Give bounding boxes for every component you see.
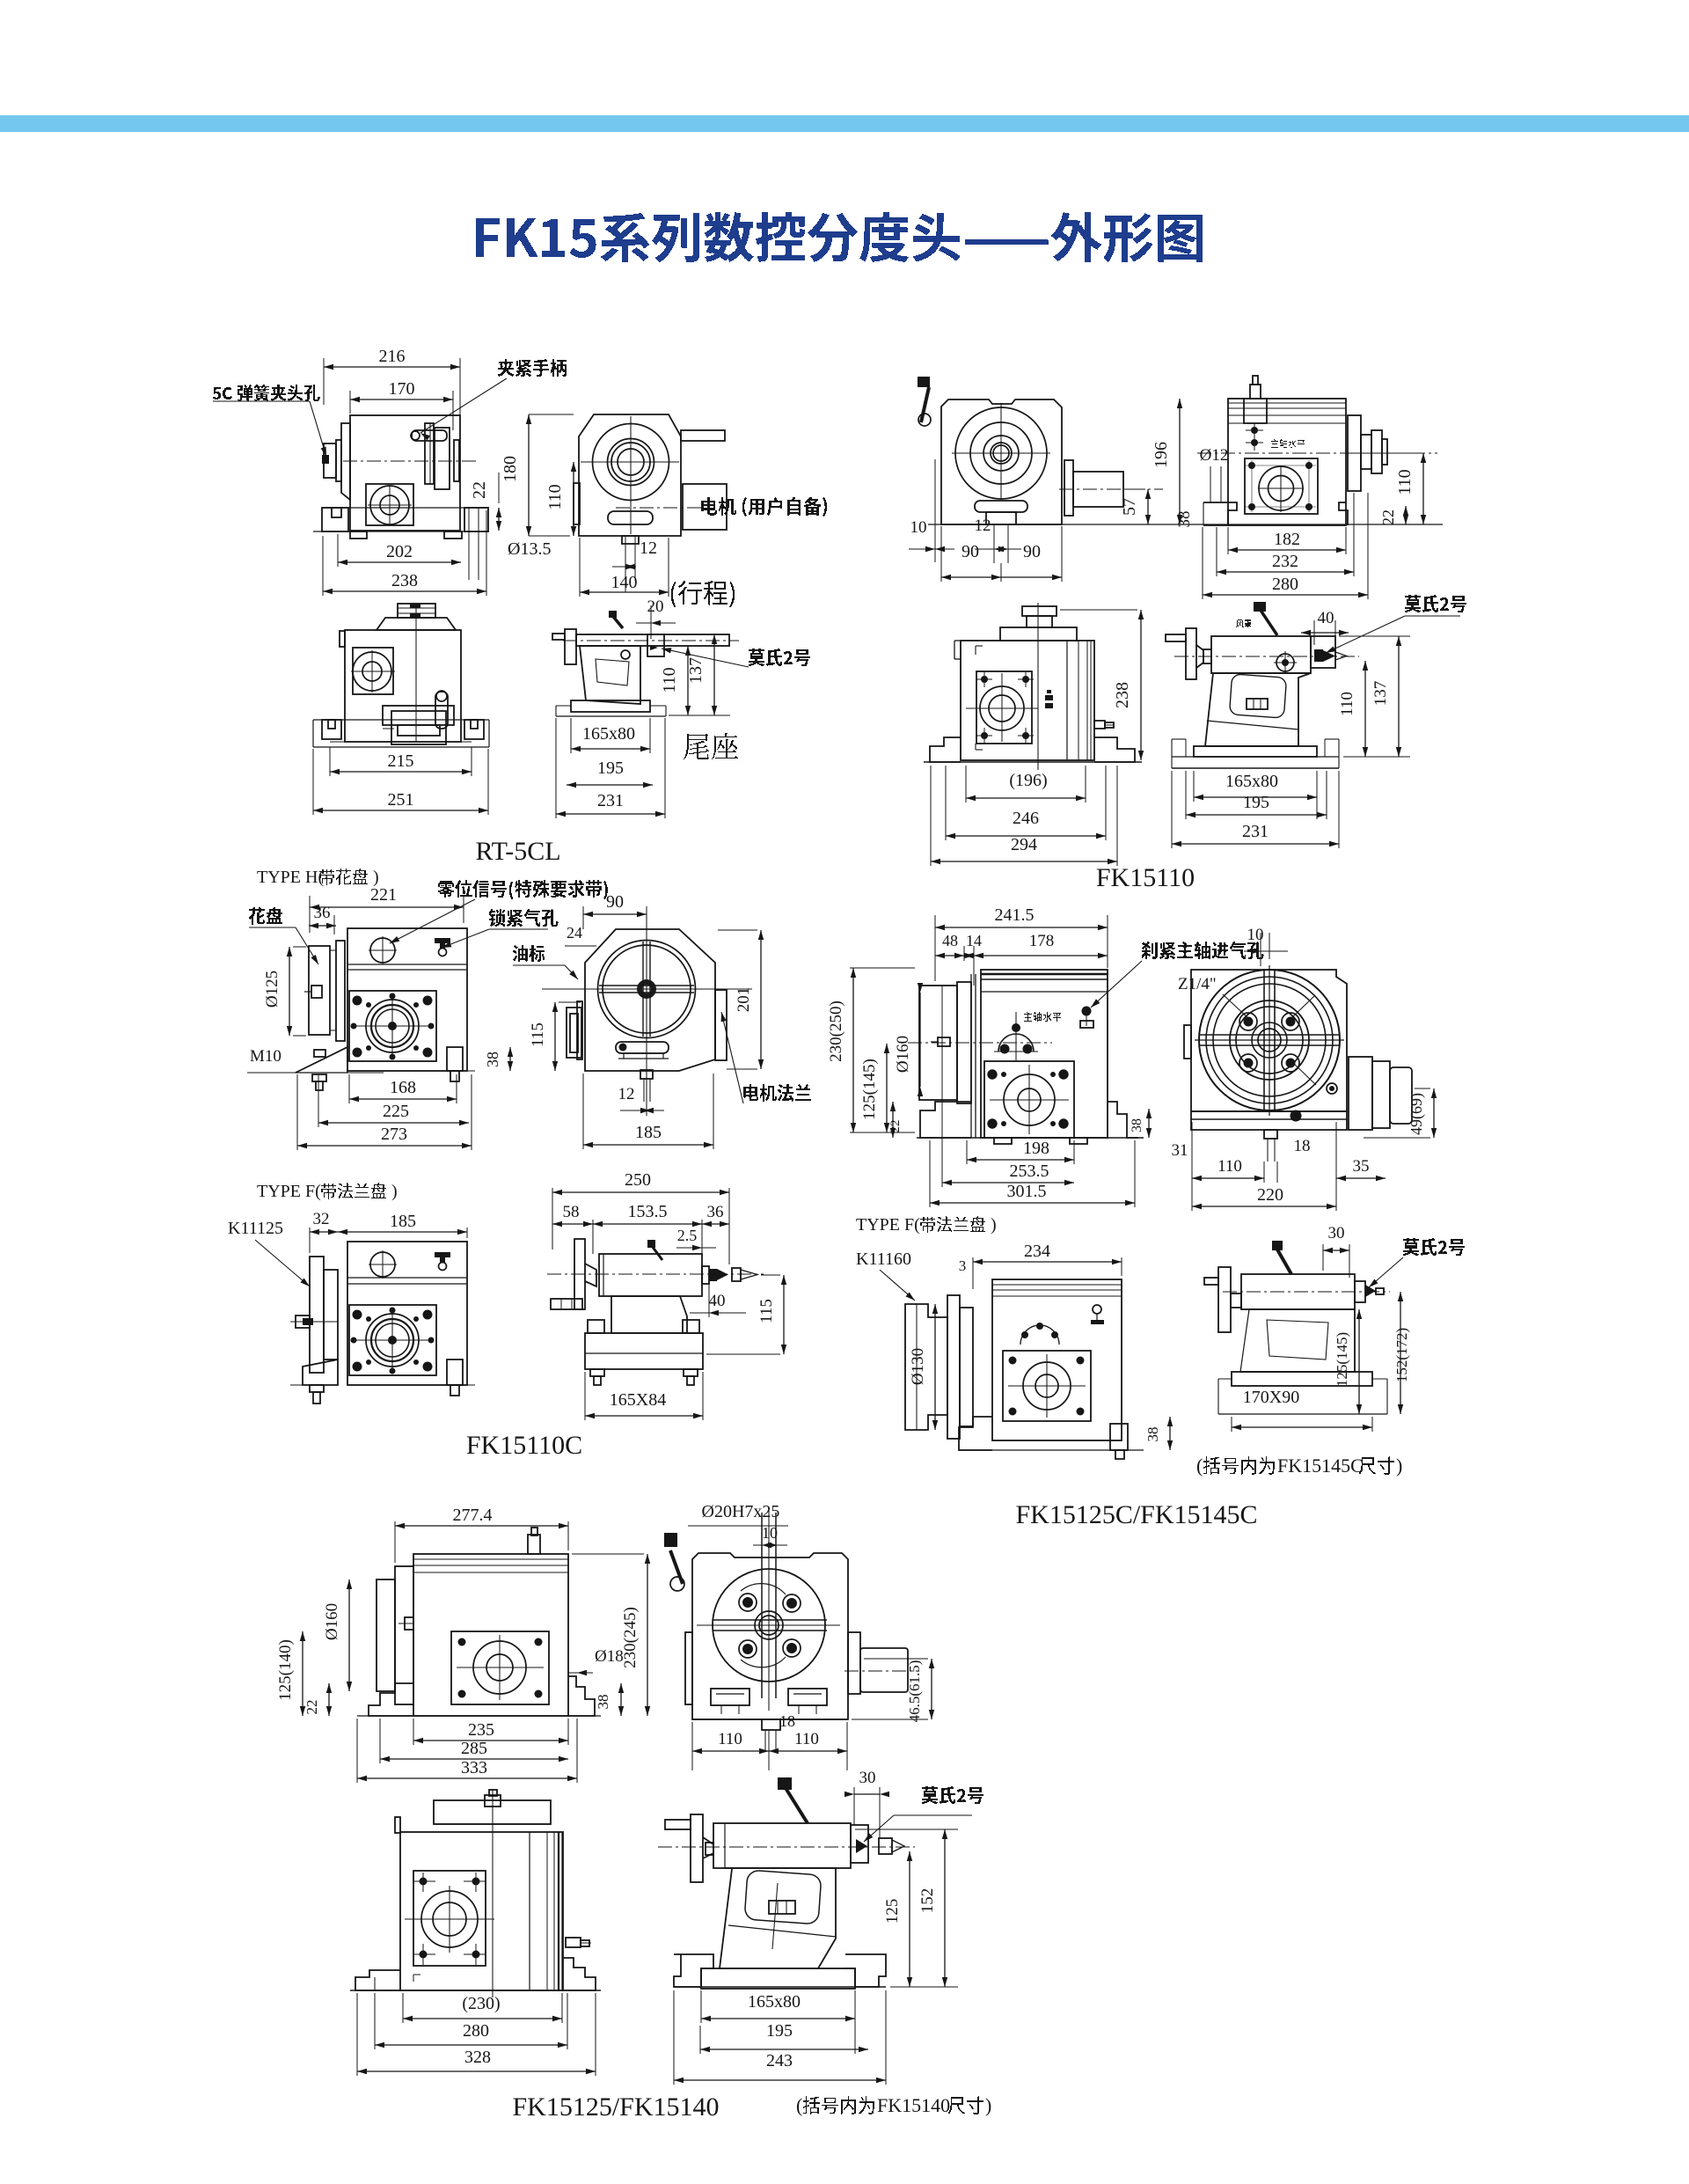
svg-text:195: 195 xyxy=(1243,793,1269,812)
svg-text:36: 36 xyxy=(314,904,331,922)
svg-text:): ) xyxy=(391,1182,398,1201)
svg-text:196: 196 xyxy=(1152,442,1171,468)
svg-text:22: 22 xyxy=(470,481,489,499)
svg-text:195: 195 xyxy=(597,759,624,778)
svg-text:110: 110 xyxy=(718,1730,742,1748)
svg-text:140: 140 xyxy=(611,573,638,592)
svg-text:294: 294 xyxy=(1011,835,1037,854)
svg-text:221: 221 xyxy=(370,885,397,905)
svg-text:38: 38 xyxy=(1175,511,1194,528)
svg-text:185: 185 xyxy=(390,1212,416,1231)
svg-text:165x80: 165x80 xyxy=(582,724,635,744)
svg-text:165x80: 165x80 xyxy=(1225,772,1278,791)
svg-text:125(140): 125(140) xyxy=(276,1639,295,1701)
svg-text:20: 20 xyxy=(647,597,664,616)
svg-text:125(145): 125(145) xyxy=(1334,1332,1350,1387)
svg-text:22: 22 xyxy=(1379,509,1397,525)
svg-text:153.5: 153.5 xyxy=(628,1202,668,1221)
svg-text:TYPE H(: TYPE H( xyxy=(257,868,324,887)
svg-text:165X84: 165X84 xyxy=(610,1390,666,1410)
svg-text:(230): (230) xyxy=(462,1994,500,2013)
svg-text:38: 38 xyxy=(595,1695,611,1710)
svg-text:38: 38 xyxy=(484,1052,501,1067)
svg-text:RT-5CL: RT-5CL xyxy=(475,837,560,866)
svg-text:125(145): 125(145) xyxy=(860,1059,879,1120)
svg-text:115: 115 xyxy=(529,1022,547,1047)
svg-text:38: 38 xyxy=(1130,1118,1144,1132)
svg-text:110: 110 xyxy=(1395,469,1415,495)
svg-text:225: 225 xyxy=(383,1102,409,1121)
svg-text:182: 182 xyxy=(1274,530,1300,549)
svg-text:90: 90 xyxy=(961,542,979,561)
svg-text:M10: M10 xyxy=(250,1047,281,1066)
svg-text:90: 90 xyxy=(606,892,624,912)
svg-text:152(172): 152(172) xyxy=(1393,1328,1410,1382)
svg-text:232: 232 xyxy=(1272,552,1298,571)
svg-text:36: 36 xyxy=(707,1203,724,1221)
svg-text:110: 110 xyxy=(545,484,565,509)
svg-text:18: 18 xyxy=(779,1712,795,1730)
svg-text:202: 202 xyxy=(386,542,413,561)
svg-text:235: 235 xyxy=(468,1720,494,1740)
svg-text:110: 110 xyxy=(1217,1157,1242,1176)
svg-text:Z1/4": Z1/4" xyxy=(1178,975,1217,993)
svg-text:10: 10 xyxy=(1247,926,1264,944)
svg-text:220: 220 xyxy=(1257,1185,1283,1205)
svg-text:238: 238 xyxy=(1113,682,1132,708)
svg-text:251: 251 xyxy=(388,790,414,810)
svg-text:Ø160: Ø160 xyxy=(894,1036,912,1073)
svg-text:10: 10 xyxy=(910,518,927,537)
svg-text:165x80: 165x80 xyxy=(748,1992,801,2012)
svg-text:FK15110C: FK15110C xyxy=(466,1431,582,1460)
svg-text:FK15110: FK15110 xyxy=(1096,863,1195,892)
svg-text:285: 285 xyxy=(461,1739,487,1758)
svg-text:TYPE F(: TYPE F( xyxy=(257,1182,321,1201)
svg-text:253.5: 253.5 xyxy=(1010,1162,1049,1181)
svg-text:110: 110 xyxy=(660,667,679,693)
svg-text:): ) xyxy=(991,1215,997,1235)
svg-text:Ø160: Ø160 xyxy=(323,1603,341,1640)
svg-text:(: ( xyxy=(1196,1455,1203,1477)
svg-text:170: 170 xyxy=(389,379,415,399)
svg-text:(196): (196) xyxy=(1009,771,1047,790)
svg-text:58: 58 xyxy=(563,1203,580,1221)
svg-text:24: 24 xyxy=(567,924,582,942)
svg-text:234: 234 xyxy=(1024,1242,1050,1261)
svg-text:48: 48 xyxy=(942,932,958,949)
svg-text:12: 12 xyxy=(640,539,657,558)
svg-text:115: 115 xyxy=(757,1299,776,1323)
svg-text:32: 32 xyxy=(313,1210,330,1228)
svg-text:22: 22 xyxy=(888,1120,903,1133)
svg-text:178: 178 xyxy=(1029,932,1055,950)
svg-text:301.5: 301.5 xyxy=(1007,1182,1047,1201)
svg-text:280: 280 xyxy=(1272,575,1298,594)
svg-text:152: 152 xyxy=(918,1888,937,1914)
svg-text:230(245): 230(245) xyxy=(621,1607,640,1668)
svg-text:90: 90 xyxy=(1023,542,1041,561)
svg-text:243: 243 xyxy=(766,2051,793,2070)
svg-text:Ø130: Ø130 xyxy=(909,1348,927,1385)
svg-text:333: 333 xyxy=(461,1758,487,1777)
svg-text:40: 40 xyxy=(1318,609,1334,627)
svg-text:201: 201 xyxy=(735,987,753,1013)
svg-text:273: 273 xyxy=(381,1125,407,1144)
svg-text:3: 3 xyxy=(959,1257,967,1274)
svg-text:FK15140: FK15140 xyxy=(877,2094,950,2116)
svg-text:137: 137 xyxy=(1371,681,1390,707)
svg-text:): ) xyxy=(373,868,379,887)
svg-text:180: 180 xyxy=(501,456,520,482)
svg-text:K11125: K11125 xyxy=(228,1219,283,1238)
svg-text:195: 195 xyxy=(766,2021,793,2041)
svg-text:35: 35 xyxy=(1353,1157,1370,1176)
svg-text:328: 328 xyxy=(464,2048,491,2067)
svg-text:): ) xyxy=(1396,1455,1402,1477)
svg-text:280: 280 xyxy=(463,2021,489,2041)
svg-text:Ø125: Ø125 xyxy=(263,971,281,1008)
svg-text:49(69): 49(69) xyxy=(1407,1093,1426,1135)
svg-text:31: 31 xyxy=(1172,1141,1188,1160)
svg-text:30: 30 xyxy=(1328,1224,1345,1242)
svg-text:110: 110 xyxy=(794,1730,819,1748)
svg-text:110: 110 xyxy=(1338,692,1356,716)
svg-text:250: 250 xyxy=(625,1170,651,1190)
svg-text:168: 168 xyxy=(390,1078,416,1097)
svg-text:215: 215 xyxy=(388,751,414,771)
svg-text:170X90: 170X90 xyxy=(1243,1388,1299,1407)
svg-text:246: 246 xyxy=(1013,809,1039,828)
svg-text:Ø13.5: Ø13.5 xyxy=(508,539,551,559)
svg-text:TYPE F(: TYPE F( xyxy=(856,1215,920,1235)
svg-text:FK15145C: FK15145C xyxy=(1277,1455,1364,1477)
svg-text:38: 38 xyxy=(1144,1427,1161,1442)
svg-text:277.4: 277.4 xyxy=(453,1506,493,1525)
svg-text:185: 185 xyxy=(635,1123,662,1142)
svg-text:18: 18 xyxy=(1294,1137,1311,1155)
svg-text:2.5: 2.5 xyxy=(677,1227,698,1244)
svg-text:10: 10 xyxy=(762,1524,778,1542)
svg-text:K11160: K11160 xyxy=(856,1250,911,1269)
svg-text:): ) xyxy=(985,2094,991,2116)
svg-text:238: 238 xyxy=(391,571,418,590)
svg-text:30: 30 xyxy=(859,1769,876,1787)
svg-text:(: ( xyxy=(796,2094,802,2116)
svg-text:57: 57 xyxy=(1120,498,1139,516)
svg-text:198: 198 xyxy=(1023,1139,1049,1158)
svg-text:241.5: 241.5 xyxy=(995,905,1035,925)
svg-text:12: 12 xyxy=(975,517,991,535)
svg-text:230(250): 230(250) xyxy=(827,1000,845,1062)
svg-text:137: 137 xyxy=(686,657,706,684)
svg-text:FK15125/FK15140: FK15125/FK15140 xyxy=(512,2092,719,2122)
svg-text:Ø18: Ø18 xyxy=(595,1647,624,1666)
svg-text:231: 231 xyxy=(597,791,624,810)
svg-text:Ø20H7x25: Ø20H7x25 xyxy=(702,1502,780,1521)
svg-text:125: 125 xyxy=(883,1899,902,1924)
svg-text:12: 12 xyxy=(618,1085,635,1103)
svg-text:231: 231 xyxy=(1242,822,1269,841)
svg-text:216: 216 xyxy=(379,347,406,366)
svg-text:46.5(61.5): 46.5(61.5) xyxy=(906,1660,923,1723)
svg-text:FK15125C/FK15145C: FK15125C/FK15145C xyxy=(1015,1500,1257,1529)
svg-text:40: 40 xyxy=(709,1292,726,1310)
svg-text:Ø12: Ø12 xyxy=(1200,446,1229,465)
svg-text:22: 22 xyxy=(303,1700,320,1715)
